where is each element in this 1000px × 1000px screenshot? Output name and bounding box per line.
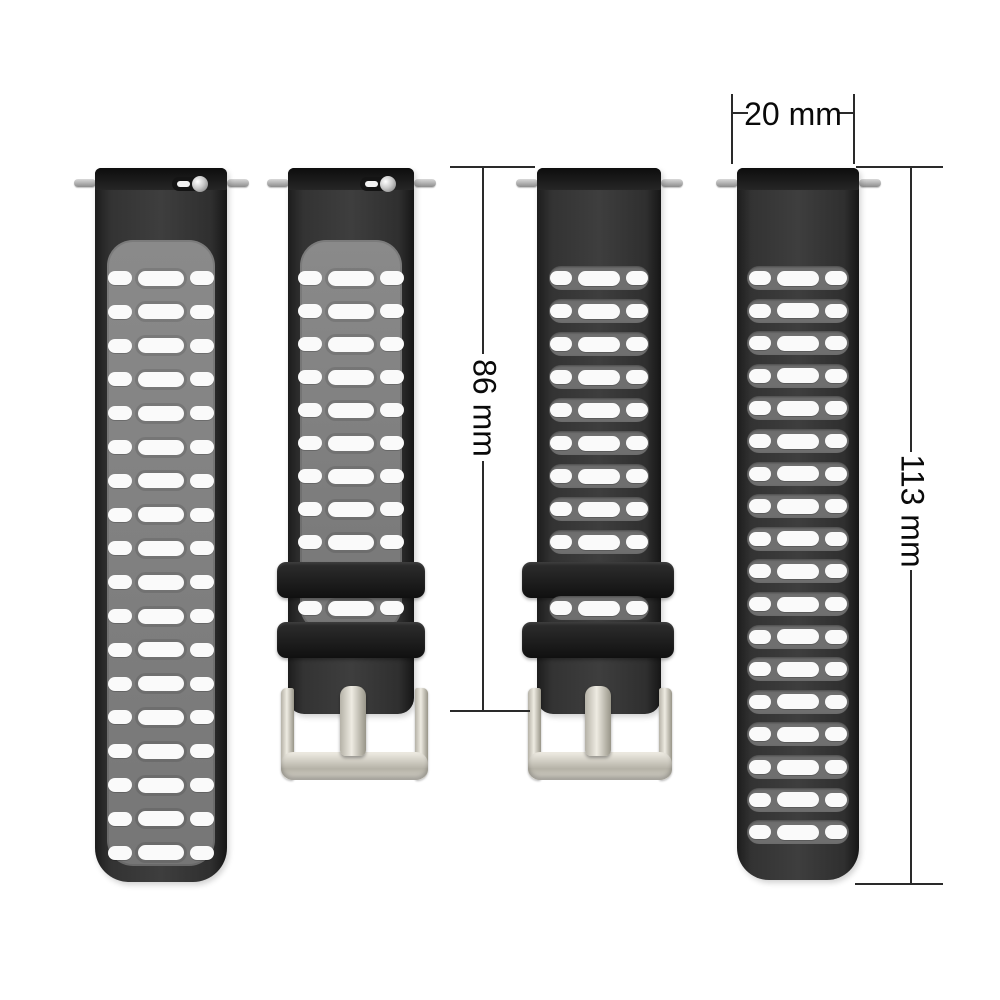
perforation-hole — [825, 760, 847, 774]
perforation-row — [747, 690, 849, 714]
perforation-hole — [749, 695, 771, 709]
dim-86-line-upper — [482, 167, 484, 354]
perforation-hole — [749, 369, 771, 383]
perforation-hole — [777, 434, 819, 449]
perforation-hole — [777, 662, 819, 677]
perforation-hole — [749, 467, 771, 481]
dim-113-line-upper — [910, 167, 912, 452]
perforation-row — [747, 559, 849, 583]
perforation-hole — [777, 694, 819, 709]
spring-bar-pin — [716, 179, 738, 187]
perforation-row — [747, 657, 849, 681]
perforation-hole — [825, 499, 847, 513]
perforation-hole — [749, 304, 771, 318]
perforation-row — [747, 462, 849, 486]
perforation-row — [747, 527, 849, 551]
perforation-hole — [777, 629, 819, 644]
perforation-hole — [749, 336, 771, 350]
perforation-hole — [749, 727, 771, 741]
perforation-hole — [825, 336, 847, 350]
perforation-hole — [749, 434, 771, 448]
dim-width-label: 20 mm — [731, 96, 855, 132]
dim-113-tick-bottom — [855, 883, 943, 885]
perforation-hole — [777, 271, 819, 286]
perforation-hole — [749, 793, 771, 807]
spring-bar-pin — [859, 179, 881, 187]
perforation-hole — [825, 434, 847, 448]
perforation-hole — [777, 401, 819, 416]
perforation-hole — [749, 825, 771, 839]
perforation-hole — [777, 825, 819, 840]
perforation-hole — [825, 727, 847, 741]
perforation-hole — [749, 499, 771, 513]
perforation-hole — [825, 304, 847, 318]
perforation-hole — [825, 564, 847, 578]
perforation-row — [747, 494, 849, 518]
perforation-hole — [749, 597, 771, 611]
perforation-hole — [825, 401, 847, 415]
perforation-row — [747, 396, 849, 420]
perforation-hole — [749, 630, 771, 644]
perforation-hole — [825, 369, 847, 383]
dim-86-label: 86 mm — [466, 359, 503, 457]
perforation-hole — [777, 303, 819, 318]
perforation-hole — [777, 466, 819, 481]
straps-layer — [0, 0, 1000, 1000]
perforation-hole — [749, 532, 771, 546]
perforation-hole — [777, 760, 819, 775]
perforation-row — [747, 592, 849, 616]
perforation-hole — [825, 695, 847, 709]
dim-113-tick-top — [856, 166, 943, 168]
perforation-row — [747, 364, 849, 388]
perforation-hole — [825, 597, 847, 611]
perforation-hole — [825, 793, 847, 807]
strap-top-cap — [737, 168, 859, 190]
perforation-hole — [825, 662, 847, 676]
perforation-hole — [825, 532, 847, 546]
perforation-row — [747, 788, 849, 812]
perforation-hole — [825, 271, 847, 285]
watch-strap-dimension-diagram: 20 mm 86 mm 113 mm — [0, 0, 1000, 1000]
perforation-hole — [749, 662, 771, 676]
dim-86-tick-top — [450, 166, 535, 168]
perforation-row — [747, 266, 849, 290]
perforation-hole — [825, 630, 847, 644]
dim-113-label: 113 mm — [894, 454, 931, 567]
perforation-hole — [749, 564, 771, 578]
long-strap-black-back — [0, 0, 1000, 1000]
perforation-hole — [749, 271, 771, 285]
perforation-row — [747, 429, 849, 453]
perforation-hole — [825, 467, 847, 481]
perforation-hole — [825, 825, 847, 839]
perforation-hole — [777, 727, 819, 742]
perforation-row — [747, 820, 849, 844]
perforation-hole — [777, 368, 819, 383]
perforation-row — [747, 625, 849, 649]
perforation-row — [747, 331, 849, 355]
perforation-hole — [777, 531, 819, 546]
perforation-hole — [777, 499, 819, 514]
perforation-hole — [749, 760, 771, 774]
perforation-hole — [777, 597, 819, 612]
perforation-hole — [749, 401, 771, 415]
perforation-row — [747, 299, 849, 323]
dim-86-tick-bottom — [450, 710, 530, 712]
perforation-hole — [777, 564, 819, 579]
perforation-row — [747, 722, 849, 746]
dim-86-line-lower — [482, 461, 484, 711]
perforation-hole — [777, 792, 819, 807]
perforation-row — [747, 755, 849, 779]
dim-113-line-lower — [910, 570, 912, 884]
perforation-hole — [777, 336, 819, 351]
